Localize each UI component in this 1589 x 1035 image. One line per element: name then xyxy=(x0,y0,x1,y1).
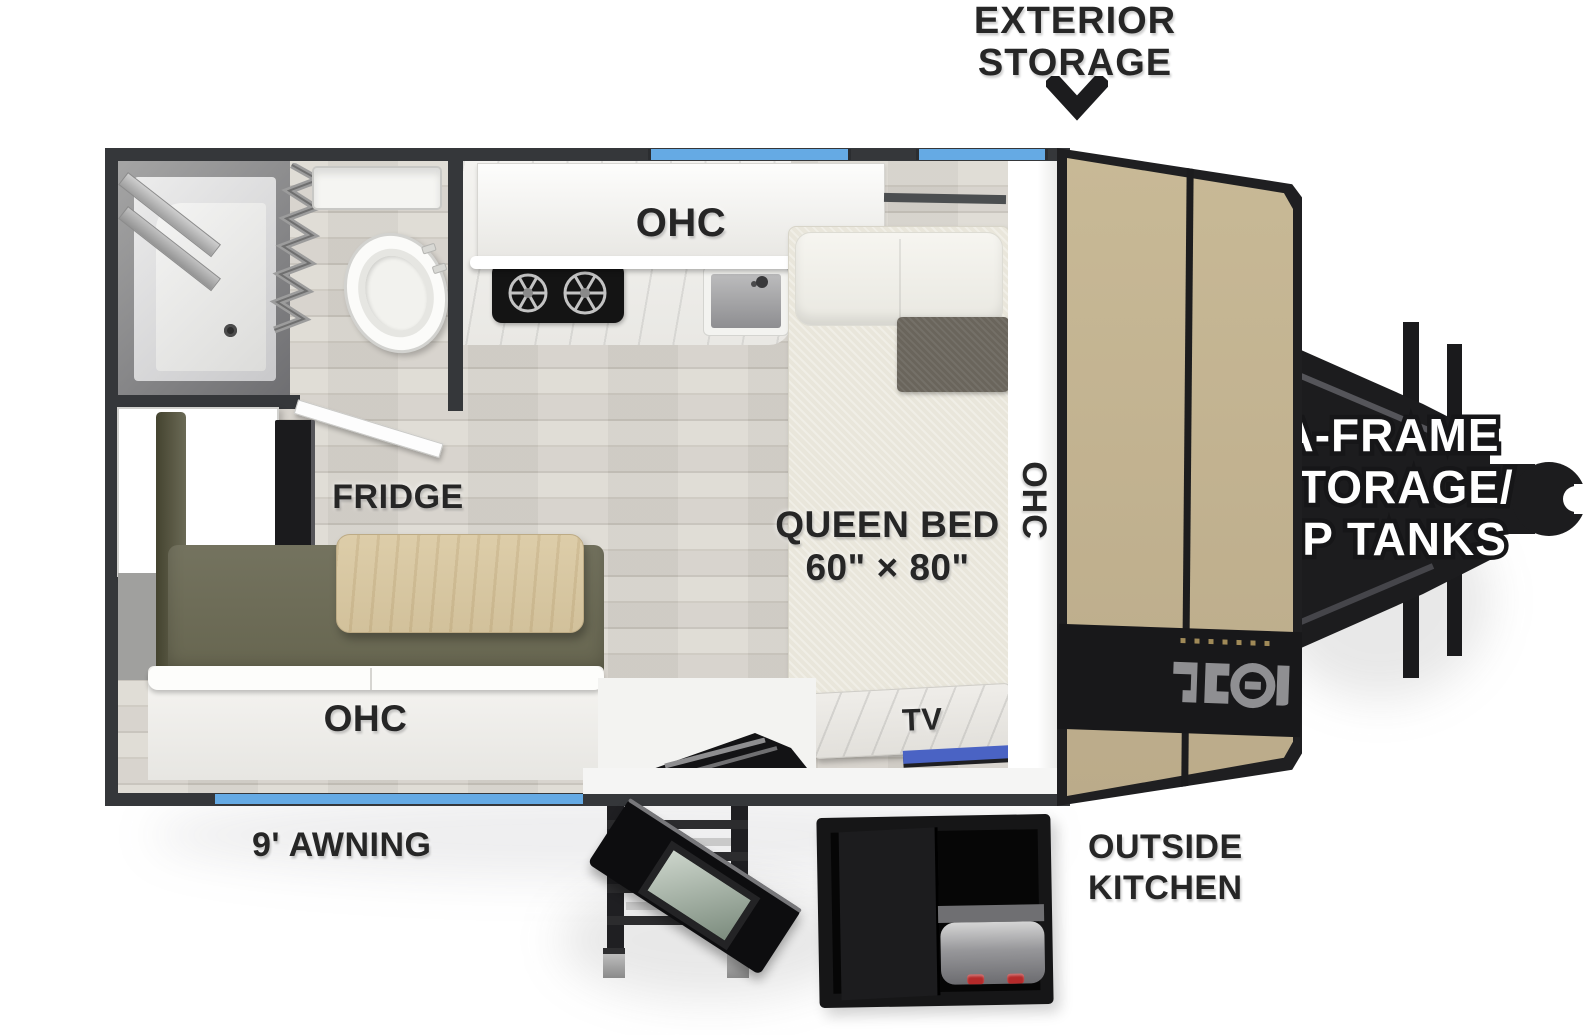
a-frame-tongue: A-FRAME STORAGE/ LP TANKS xyxy=(1283,318,1589,682)
sink-basin xyxy=(711,274,781,328)
window-top-right xyxy=(916,149,1048,160)
aframe-label-line3: LP TANKS xyxy=(1283,513,1507,565)
shower-drain-icon xyxy=(224,324,237,337)
outside-kitchen-label-line1: OUTSIDE xyxy=(1088,828,1243,867)
door-landing xyxy=(583,768,1057,794)
bedroom-ohc-cabinet: OHC xyxy=(1010,448,1056,552)
griddle-knob xyxy=(1007,973,1024,983)
aframe-label-line1: A-FRAME xyxy=(1283,409,1500,461)
kitchen-sink xyxy=(703,266,789,336)
front-graphics-band xyxy=(1055,624,1304,737)
burner-icons xyxy=(492,263,624,323)
queen-bed-label: QUEEN BED xyxy=(760,504,1015,546)
bathroom-wall xyxy=(448,161,463,411)
exterior-storage-label-line1: EXTERIOR xyxy=(940,0,1210,43)
cabinet-divider xyxy=(370,668,372,690)
toilet-tank xyxy=(312,166,442,210)
outside-kitchen-unit xyxy=(816,814,1053,1008)
window-top-left xyxy=(648,149,851,160)
stove-cooktop xyxy=(492,263,624,323)
dinette-ohc-label: OHC xyxy=(288,698,443,740)
floorplan-canvas: OHC QUEEN BED 60" × 80" TV OHC FRIDGE OH… xyxy=(0,0,1589,1035)
chevron-down-icon xyxy=(1046,76,1108,122)
awning-rail xyxy=(215,794,583,804)
tv-label: TV xyxy=(901,701,943,738)
dinette-cabinet-lip xyxy=(148,666,604,690)
fridge-label: FRIDGE xyxy=(323,478,473,517)
griddle-knob xyxy=(967,974,984,984)
outside-kitchen-shelf xyxy=(938,904,1044,923)
faucet-icon xyxy=(756,276,768,288)
toilet-seat xyxy=(347,239,445,347)
brand-graphic xyxy=(1167,644,1290,728)
step-foot xyxy=(603,948,625,978)
front-storage xyxy=(1057,148,1302,806)
pillow-seam xyxy=(899,239,901,319)
queen-bed-size-label: 60" × 80" xyxy=(760,547,1015,589)
kitchen-ohc-label: OHC xyxy=(601,201,761,246)
outside-kitchen-label-line2: KITCHEN xyxy=(1088,869,1243,908)
aframe-label-line2: STORAGE/ xyxy=(1283,461,1514,513)
awning-label: 9' AWNING xyxy=(252,826,431,865)
outside-kitchen-griddle xyxy=(940,921,1045,985)
outside-kitchen-module xyxy=(839,827,941,1000)
bed-cushion xyxy=(897,317,1009,392)
bed-pillows xyxy=(795,232,1003,326)
dinette-table xyxy=(336,534,584,633)
bedroom-ohc-label: OHC xyxy=(1014,461,1053,540)
